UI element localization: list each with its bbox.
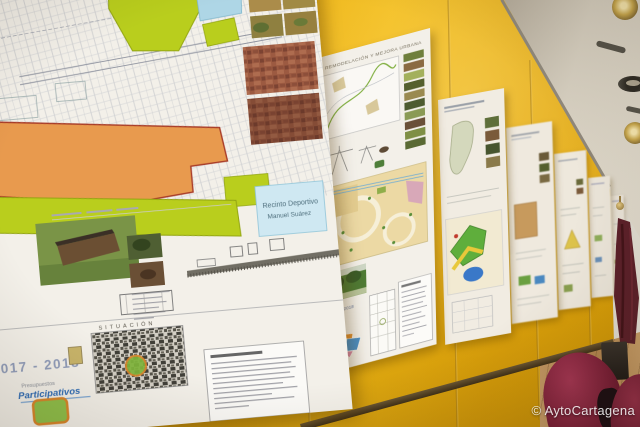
site-marker-icon [125, 355, 147, 377]
colored-plan [446, 210, 504, 296]
ceiling-vent-icon [626, 106, 640, 115]
description-block [398, 273, 432, 348]
legend-graphic [33, 398, 69, 425]
aerial-photo-strip [238, 0, 327, 145]
ceiling-light-icon [612, 0, 638, 20]
city-crest-icon [68, 346, 82, 364]
watermark: © AytoCartagena [532, 403, 635, 418]
recessed-light-icon [618, 76, 640, 92]
zone-label-card: Recinto Deportivo Manuel Suárez [255, 181, 327, 237]
poster-project-4 [506, 121, 558, 324]
ceiling-light-icon [624, 122, 640, 144]
exhibition-room-photo: Recinto Deportivo Manuel Suárez [0, 0, 640, 427]
tan-plan [514, 202, 537, 239]
poster-urban-plan-left: Recinto Deportivo Manuel Suárez [0, 0, 353, 427]
planter-photo [35, 215, 140, 285]
poster-project-3 [438, 88, 511, 345]
poster-project-5 [554, 150, 591, 310]
ceiling-vent-icon [596, 40, 627, 54]
sketch-map [370, 289, 396, 356]
description-block [204, 341, 310, 421]
flag-finial-icon [616, 202, 624, 210]
